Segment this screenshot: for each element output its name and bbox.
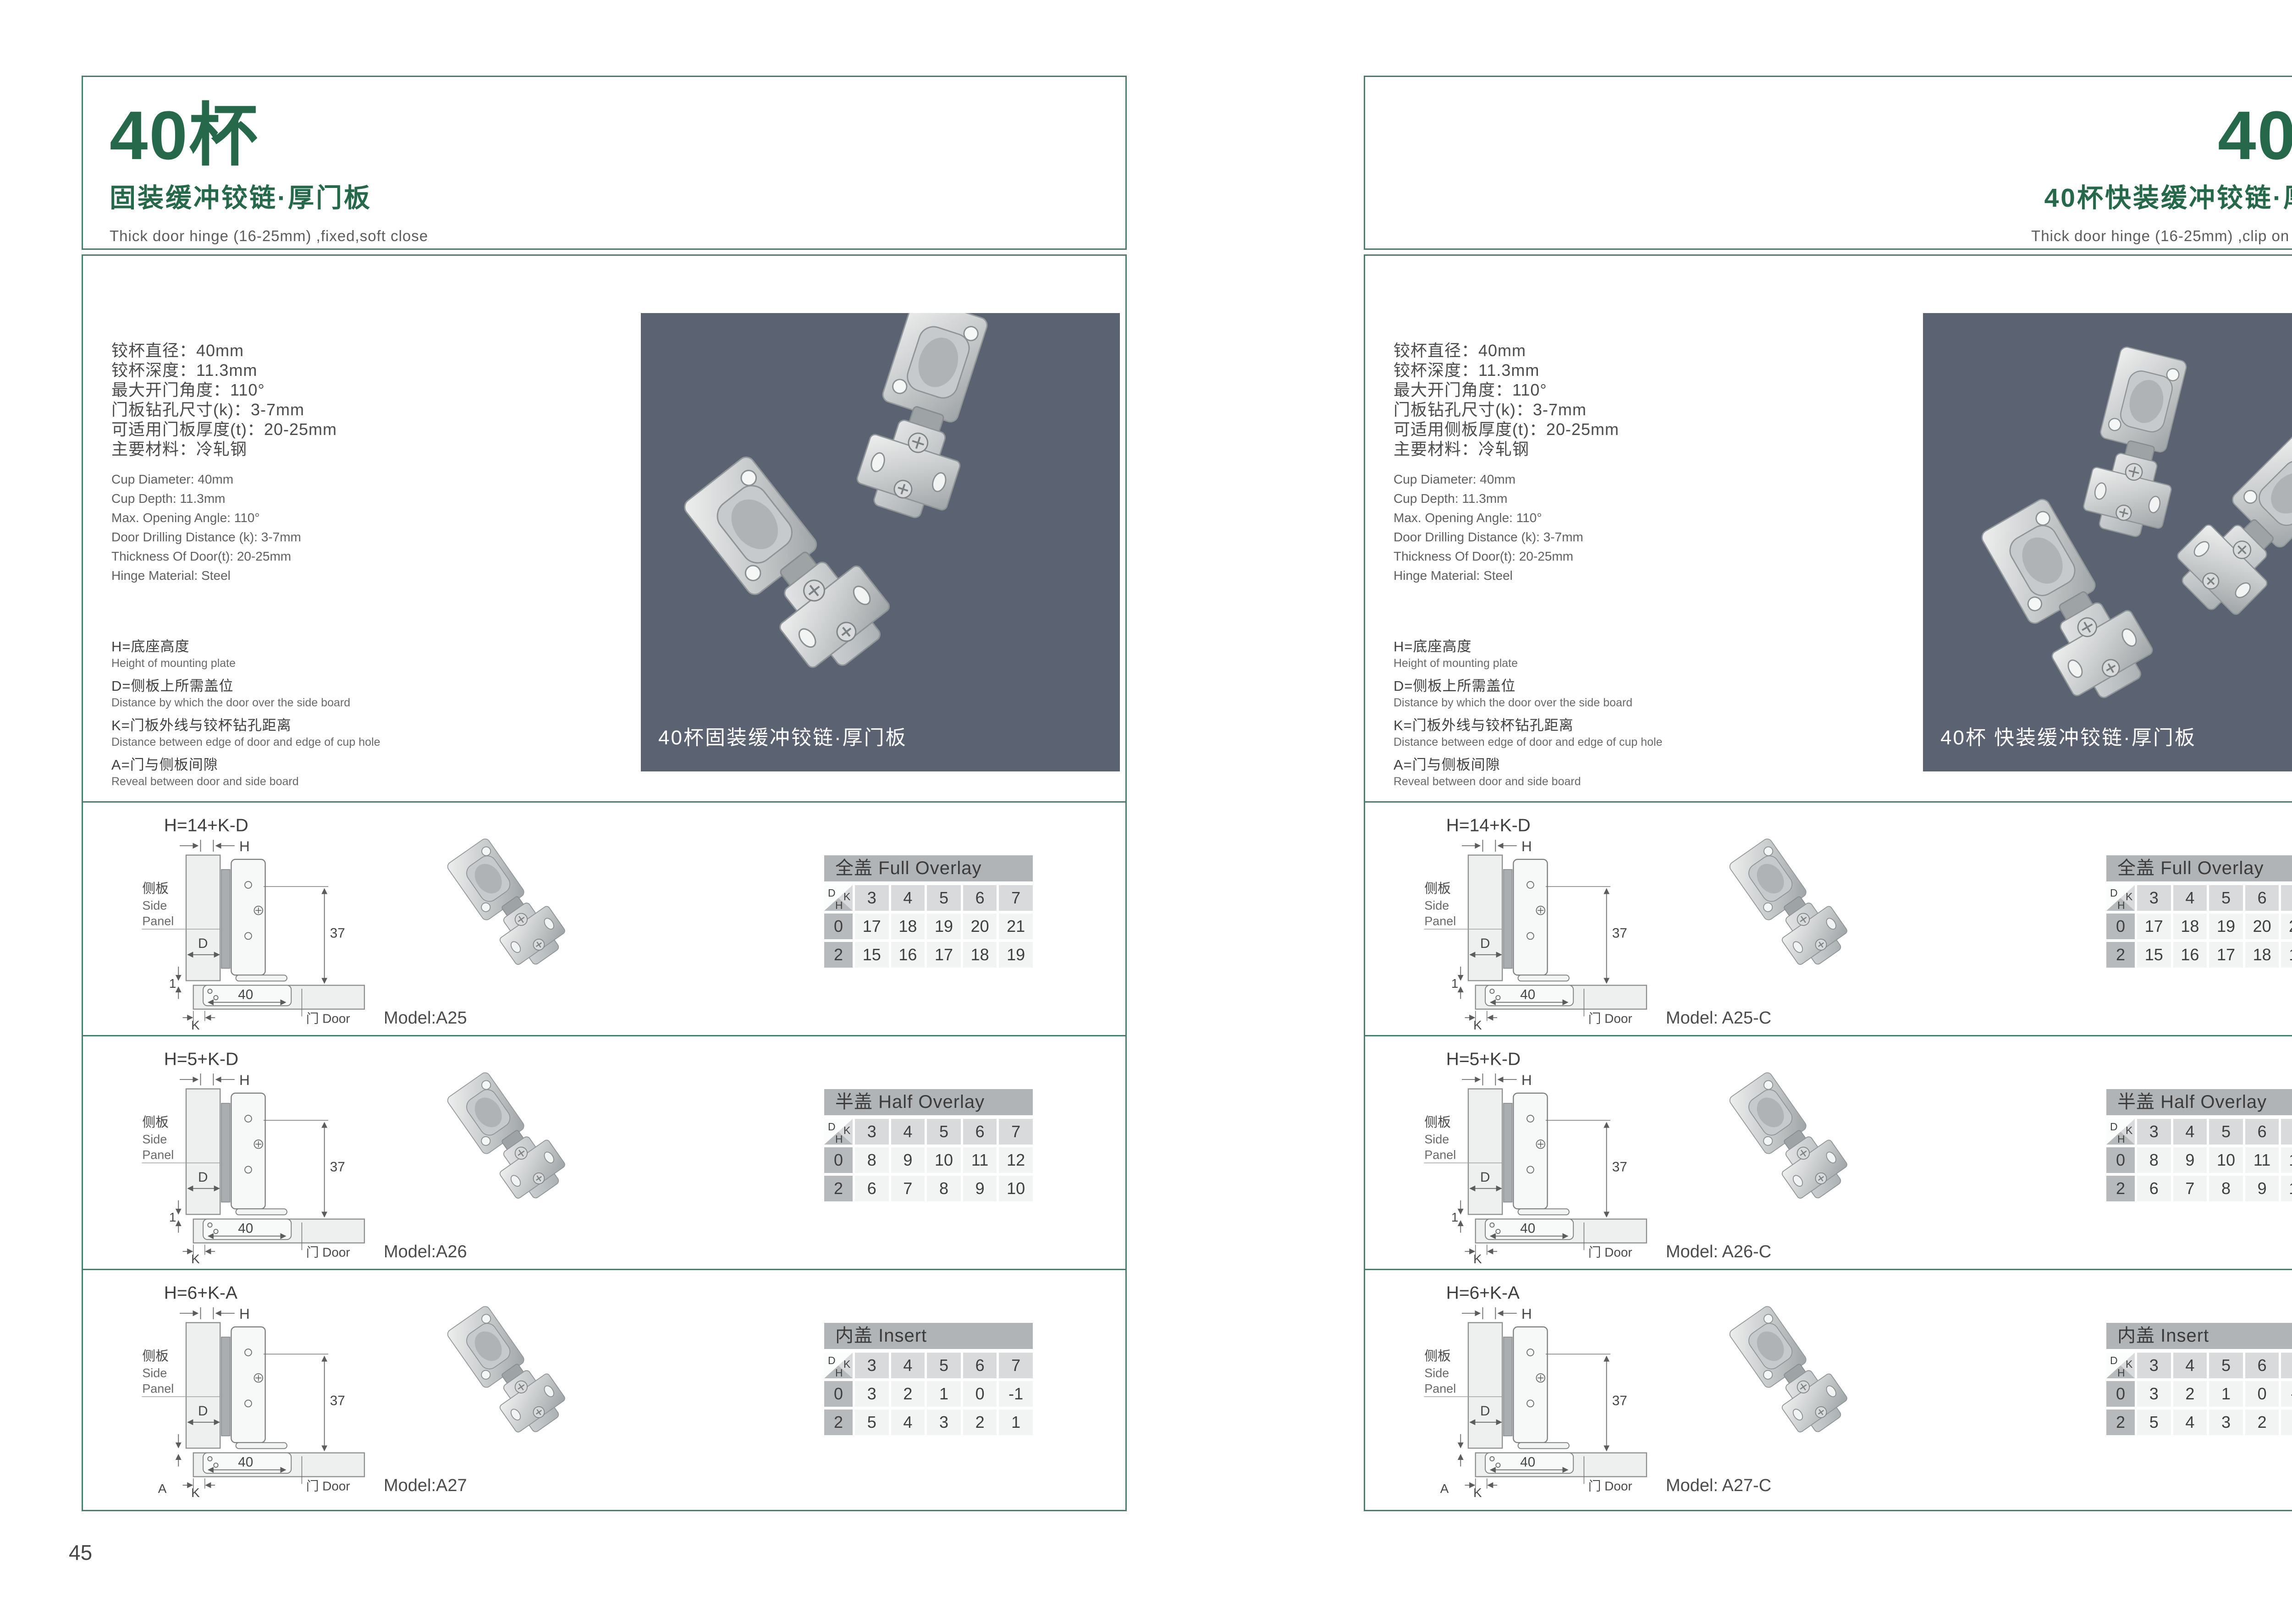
side-panel-en: Side <box>1424 898 1449 912</box>
table-col-header: 7 <box>2281 885 2292 911</box>
svg-text:K: K <box>843 1124 851 1136</box>
table-cell: 8 <box>855 1147 889 1173</box>
page46-header: 40杯 40杯快装缓冲铰链·厚门板 Thick door hinge (16-2… <box>1364 76 2292 250</box>
dim-h-label: H <box>1521 1072 1532 1088</box>
dim-gap-label: 1 <box>1451 976 1458 991</box>
table-cell: 3 <box>927 1409 961 1435</box>
dim-37-label: 37 <box>330 1160 345 1175</box>
side-panel-en: Side <box>142 1132 167 1146</box>
table-cell: 4 <box>891 1409 925 1435</box>
dim-40-label: 40 <box>1520 1454 1535 1470</box>
page-45: 40杯 固装缓冲铰链·厚门板 Thick door hinge (16-25mm… <box>82 76 1127 1511</box>
dim-d-label: D <box>1480 1170 1490 1185</box>
table-cell: 19 <box>2209 914 2243 939</box>
spec-line: Max. Opening Angle: 110° <box>1394 508 1907 528</box>
dim-37-label: 37 <box>1612 926 1627 941</box>
spec-block: 铰杯直径：40mm铰杯深度：11.3mm最大开门角度：110°门板钻孔尺寸(k)… <box>1394 341 1907 585</box>
page-subtitle-en: Thick door hinge (16-25mm) ,fixed,soft c… <box>110 227 1085 245</box>
specs-en: Cup Diameter: 40mmCup Depth: 11.3mmMax. … <box>111 470 625 585</box>
table-cell: 9 <box>2245 1176 2279 1201</box>
svg-text:K: K <box>843 1358 851 1370</box>
side-panel-en: Side <box>142 1366 167 1380</box>
table-grid: D K H 345670171819202121516171819 <box>2106 885 2292 968</box>
half-overlay-table: 半盖 Half Overlay D K H 345670891011122678… <box>824 1089 1033 1201</box>
dim-k-label: K <box>191 1486 200 1498</box>
page-46: 40杯 40杯快装缓冲铰链·厚门板 Thick door hinge (16-2… <box>1364 76 2292 1511</box>
spec-line: Cup Diameter: 40mm <box>111 470 625 489</box>
spec-line: 主要材料：冷轧钢 <box>1394 439 1907 459</box>
legend-en: Distance by which the door over the side… <box>111 695 639 710</box>
dim-k-label: K <box>1473 1486 1482 1498</box>
table-col-header: 4 <box>891 1119 925 1145</box>
dim-k-label: K <box>191 1252 200 1264</box>
dim-h-label: H <box>239 838 250 854</box>
side-panel-en: Panel <box>142 1148 174 1162</box>
table-cell: 1 <box>999 1409 1033 1435</box>
specs-en: Cup Diameter: 40mmCup Depth: 11.3mmMax. … <box>1394 470 1907 585</box>
side-panel-en: Panel <box>1424 914 1456 928</box>
side-panel-cn: 侧板 <box>1424 1349 1451 1364</box>
table-col-header: 3 <box>2137 1119 2171 1145</box>
table-cell: 3 <box>855 1381 889 1407</box>
dim-a-label: A <box>158 1481 167 1496</box>
half-overlay-table: 半盖 Half Overlay D K H 345670891011122678… <box>2106 1089 2292 1201</box>
page-subtitle-en: Thick door hinge (16-25mm) ,clip on ,sof… <box>1392 227 2292 245</box>
spec-line: 铰杯深度：11.3mm <box>1394 360 1907 380</box>
table-grid: D K H 345670891011122678910 <box>2106 1119 2292 1201</box>
table-title: 内盖 Insert <box>824 1323 1033 1349</box>
svg-text:H: H <box>2117 1367 2125 1378</box>
product-row-half-overlay: H=5+K-D H 侧板 Side Panel D 37 1 40 门 Door… <box>83 1035 1125 1269</box>
table-corner-cell: D K H <box>2106 1119 2135 1145</box>
door-label: 门 Door <box>306 1479 350 1493</box>
table-cell: 9 <box>963 1176 997 1201</box>
table-cell: 2 <box>891 1381 925 1407</box>
legend-en: Distance between edge of door and edge o… <box>111 735 639 750</box>
table-row-header: 2 <box>2106 942 2135 968</box>
table-cell: 12 <box>2281 1147 2292 1173</box>
table-col-header: 6 <box>963 1119 997 1145</box>
spec-line: Cup Depth: 11.3mm <box>111 489 625 508</box>
page-subtitle: 40杯快装缓冲铰链·厚门板 <box>1392 177 2292 215</box>
table-col-header: 5 <box>927 885 961 911</box>
dim-37-label: 37 <box>1612 1393 1627 1409</box>
spec-line: 最大开门角度：110° <box>1394 380 1907 400</box>
table-cell: -1 <box>999 1381 1033 1407</box>
product-photo: 40杯固装缓冲铰链·厚门板 <box>641 313 1120 771</box>
technical-drawing-svg: H=14+K-D H 侧板 Side Panel D 37 1 40 门 Doo… <box>1409 805 1670 1030</box>
table-col-header: 3 <box>2137 1353 2171 1378</box>
spec-line: 可适用侧板厚度(t)：20-25mm <box>1394 419 1907 439</box>
technical-drawing: H=5+K-D H 侧板 Side Panel D 37 1 40 门 Door… <box>1409 1039 1670 1264</box>
table-grid: D K H 345670171819202121516171819 <box>824 885 1033 968</box>
table-col-header: 4 <box>2173 1119 2207 1145</box>
table-title: 全盖 Full Overlay <box>2106 855 2292 881</box>
table-col-header: 6 <box>2245 1353 2279 1378</box>
legend-cn: A=门与侧板间隙 <box>1394 756 1921 774</box>
table-cell: 17 <box>855 914 889 939</box>
table-cell: 8 <box>2137 1147 2171 1173</box>
page-title: 40杯 <box>1392 101 2292 170</box>
table-row-header: 0 <box>2106 1147 2135 1173</box>
dimension-legend: H=底座高度Height of mounting plateD=侧板上所需盖位D… <box>1394 638 1921 795</box>
product-row-insert: H=6+K-A H 侧板 Side Panel D 37 40 门 Door K… <box>83 1269 1125 1503</box>
svg-text:K: K <box>2126 891 2133 903</box>
dim-a-label: A <box>1440 1481 1449 1496</box>
spec-line: Door Drilling Distance (k): 3-7mm <box>111 528 625 547</box>
product-photo-art <box>1923 313 2292 771</box>
technical-drawing: H=5+K-D H 侧板 Side Panel D 37 1 40 门 Door… <box>127 1039 388 1264</box>
door-label: 门 Door <box>306 1245 350 1259</box>
side-panel-cn: 侧板 <box>142 1115 169 1130</box>
photo-caption: 40杯固装缓冲铰链·厚门板 <box>658 721 907 750</box>
legend-en: Distance between edge of door and edge o… <box>1394 735 1921 750</box>
table-cell: 19 <box>927 914 961 939</box>
svg-text:H: H <box>2117 899 2125 911</box>
table-cell: 7 <box>2173 1176 2207 1201</box>
table-col-header: 7 <box>999 1353 1033 1378</box>
spec-line: 铰杯直径：40mm <box>1394 341 1907 360</box>
side-panel-en: Panel <box>1424 1148 1456 1162</box>
spec-line: 门板钻孔尺寸(k)：3-7mm <box>111 400 625 419</box>
table-cell: 4 <box>2173 1409 2207 1435</box>
legend-cn: K=门板外线与铰杯钻孔距离 <box>111 716 639 735</box>
table-cell: 10 <box>927 1147 961 1173</box>
side-panel-en: Panel <box>1424 1382 1456 1396</box>
table-corner-cell: D K H <box>824 885 853 911</box>
product-row-insert: H=6+K-A H 侧板 Side Panel D 37 40 门 Door K… <box>1365 1269 2292 1503</box>
legend-item: K=门板外线与铰杯钻孔距离Distance between edge of do… <box>1394 716 1921 750</box>
table-cell: 0 <box>963 1381 997 1407</box>
table-cell: 2 <box>963 1409 997 1435</box>
table-cell: 15 <box>855 942 889 968</box>
side-panel-cn: 侧板 <box>142 881 169 896</box>
spec-line: 铰杯直径：40mm <box>111 341 625 360</box>
table-col-header: 4 <box>2173 1353 2207 1378</box>
table-cell: 21 <box>2281 914 2292 939</box>
hinge-photo <box>1686 1046 1901 1230</box>
table-cell: 18 <box>2245 942 2279 968</box>
table-col-header: 6 <box>2245 1119 2279 1145</box>
table-cell: 20 <box>963 914 997 939</box>
spec-line: Hinge Material: Steel <box>111 566 625 585</box>
table-col-header: 7 <box>2281 1353 2292 1378</box>
legend-item: A=门与侧板间隙Reveal between door and side boa… <box>111 756 639 789</box>
side-panel-cn: 侧板 <box>1424 881 1451 896</box>
technical-drawing-svg: H=5+K-D H 侧板 Side Panel D 37 1 40 门 Door… <box>1409 1039 1670 1264</box>
hinge-photo <box>1686 813 1901 996</box>
table-cell: 16 <box>2173 942 2207 968</box>
table-col-header: 3 <box>855 1119 889 1145</box>
technical-drawing-svg: H=5+K-D H 侧板 Side Panel D 37 1 40 门 Door… <box>127 1039 388 1264</box>
spec-block: 铰杯直径：40mm铰杯深度：11.3mm最大开门角度：110°门板钻孔尺寸(k)… <box>111 341 625 585</box>
table-cell: 12 <box>999 1147 1033 1173</box>
dim-37-label: 37 <box>330 1393 345 1409</box>
door-label: 门 Door <box>306 1011 350 1025</box>
spec-line: 最大开门角度：110° <box>111 380 625 400</box>
hinge-illustration <box>404 813 619 996</box>
dim-k-label: K <box>191 1018 200 1030</box>
page45-content: 铰杯直径：40mm铰杯深度：11.3mm最大开门角度：110°门板钻孔尺寸(k)… <box>82 254 1127 1511</box>
table-cell: 18 <box>963 942 997 968</box>
table-cell: 11 <box>963 1147 997 1173</box>
table-col-header: 5 <box>2209 1119 2243 1145</box>
table-cell: 8 <box>2209 1176 2243 1201</box>
table-corner-cell: D K H <box>2106 1353 2135 1378</box>
product-row-full-overlay: H=14+K-D H 侧板 Side Panel D 37 1 40 门 Doo… <box>1365 801 2292 1035</box>
svg-text:D: D <box>828 1121 836 1133</box>
table-cell: -1 <box>2281 1381 2292 1407</box>
product-photo: 40杯 快装缓冲铰链·厚门板 <box>1923 313 2292 771</box>
side-panel-en: Side <box>1424 1366 1449 1380</box>
table-cell: 6 <box>2137 1176 2171 1201</box>
technical-drawing: H=14+K-D H 侧板 Side Panel D 37 1 40 门 Doo… <box>127 805 388 1030</box>
legend-item: H=底座高度Height of mounting plate <box>111 638 639 671</box>
dim-gap-label: 1 <box>169 976 176 991</box>
table-cell: 18 <box>891 914 925 939</box>
hinge-illustration <box>1686 1280 1901 1464</box>
hinge-photo <box>404 1046 619 1230</box>
table-corner-cell: D K H <box>2106 885 2135 911</box>
svg-text:H: H <box>835 1367 843 1378</box>
table-corner-cell: D K H <box>824 1353 853 1378</box>
legend-item: A=门与侧板间隙Reveal between door and side boa… <box>1394 756 1921 789</box>
table-row-header: 2 <box>824 1409 853 1435</box>
legend-cn: D=侧板上所需盖位 <box>111 677 639 695</box>
table-cell: 19 <box>2281 942 2292 968</box>
technical-drawing: H=6+K-A H 侧板 Side Panel D 37 40 门 Door K… <box>1409 1272 1670 1498</box>
dim-h-label: H <box>1521 838 1532 854</box>
model-label: Model: A26-C <box>1666 1242 1771 1262</box>
model-label: Model:A26 <box>384 1242 467 1262</box>
table-cell: 17 <box>2137 914 2171 939</box>
full-overlay-table: 全盖 Full Overlay D K H 345670171819202121… <box>2106 855 2292 968</box>
side-panel-en: Side <box>1424 1132 1449 1146</box>
svg-text:D: D <box>2110 1121 2118 1133</box>
dim-37-label: 37 <box>330 926 345 941</box>
technical-drawing: H=14+K-D H 侧板 Side Panel D 37 1 40 门 Doo… <box>1409 805 1670 1030</box>
dim-40-label: 40 <box>1520 1221 1535 1236</box>
spec-line: 主要材料：冷轧钢 <box>111 439 625 459</box>
hinge-illustration <box>404 1046 619 1230</box>
table-cell: 16 <box>891 942 925 968</box>
table-col-header: 6 <box>963 1353 997 1378</box>
table-corner-cell: D K H <box>824 1119 853 1145</box>
table-cell: 9 <box>891 1147 925 1173</box>
drawing-formula: H=5+K-D <box>1446 1050 1521 1069</box>
side-panel-en: Side <box>142 898 167 912</box>
spec-line: 铰杯深度：11.3mm <box>111 360 625 380</box>
table-cell: 9 <box>2173 1147 2207 1173</box>
dim-d-label: D <box>1480 1404 1490 1419</box>
catalog-spread: 40杯 固装缓冲铰链·厚门板 Thick door hinge (16-25mm… <box>0 0 2292 1624</box>
drawing-formula: H=6+K-A <box>1446 1283 1520 1303</box>
dim-gap-label: 1 <box>1451 1210 1458 1224</box>
spec-line: 可适用门板厚度(t)：20-25mm <box>111 419 625 439</box>
legend-cn: H=底座高度 <box>1394 638 1921 656</box>
table-row-header: 0 <box>824 1381 853 1407</box>
table-col-header: 4 <box>891 1353 925 1378</box>
table-cell: 7 <box>891 1176 925 1201</box>
table-title: 全盖 Full Overlay <box>824 855 1033 881</box>
spec-line: Hinge Material: Steel <box>1394 566 1907 585</box>
dim-40-label: 40 <box>238 1454 253 1470</box>
table-col-header: 4 <box>891 885 925 911</box>
hinge-illustration <box>1686 813 1901 996</box>
table-row-header: 0 <box>2106 914 2135 939</box>
table-cell: 19 <box>999 942 1033 968</box>
dim-d-label: D <box>198 936 208 951</box>
photo-caption: 40杯 快装缓冲铰链·厚门板 <box>1940 721 2196 750</box>
side-panel-en: Panel <box>142 914 174 928</box>
table-cell: 21 <box>999 914 1033 939</box>
table-row-header: 2 <box>2106 1409 2135 1435</box>
table-col-header: 6 <box>963 885 997 911</box>
dim-h-label: H <box>239 1072 250 1088</box>
side-panel-cn: 侧板 <box>142 1349 169 1364</box>
product-row-half-overlay: H=5+K-D H 侧板 Side Panel D 37 1 40 门 Door… <box>1365 1035 2292 1269</box>
table-col-header: 3 <box>855 885 889 911</box>
drawing-formula: H=6+K-A <box>164 1283 237 1303</box>
table-row-header: 0 <box>2106 1381 2135 1407</box>
dim-37-label: 37 <box>1612 1160 1627 1175</box>
table-col-header: 3 <box>855 1353 889 1378</box>
dim-d-label: D <box>198 1404 208 1419</box>
table-cell: 11 <box>2245 1147 2279 1173</box>
table-row-header: 2 <box>824 942 853 968</box>
svg-text:K: K <box>2126 1124 2133 1136</box>
drawing-formula: H=14+K-D <box>1446 816 1531 836</box>
table-grid: D K H 345670891011122678910 <box>824 1119 1033 1201</box>
legend-item: D=侧板上所需盖位Distance by which the door over… <box>111 677 639 710</box>
table-cell: 8 <box>927 1176 961 1201</box>
spec-line: Cup Diameter: 40mm <box>1394 470 1907 489</box>
door-label: 门 Door <box>1588 1011 1632 1025</box>
table-cell: 1 <box>2281 1409 2292 1435</box>
dim-k-label: K <box>1473 1018 1482 1030</box>
legend-cn: K=门板外线与铰杯钻孔距离 <box>1394 716 1921 735</box>
technical-drawing: H=6+K-A H 侧板 Side Panel D 37 40 门 Door K… <box>127 1272 388 1498</box>
legend-en: Reveal between door and side board <box>111 774 639 789</box>
hinge-photo <box>1686 1280 1901 1464</box>
dim-h-label: H <box>1521 1305 1532 1322</box>
hinge-photo <box>404 813 619 996</box>
side-panel-cn: 侧板 <box>1424 1115 1451 1130</box>
door-label: 门 Door <box>1588 1245 1632 1259</box>
insert-table: 内盖 Insert D K H 3456703210-1254321 <box>2106 1323 2292 1435</box>
legend-en: Height of mounting plate <box>111 656 639 671</box>
technical-drawing-svg: H=14+K-D H 侧板 Side Panel D 37 1 40 门 Doo… <box>127 805 388 1030</box>
dimension-legend: H=底座高度Height of mounting plateD=侧板上所需盖位D… <box>111 638 639 795</box>
dim-40-label: 40 <box>238 1221 253 1236</box>
table-title: 半盖 Half Overlay <box>2106 1089 2292 1115</box>
dim-d-label: D <box>1480 936 1490 951</box>
page-number-left: 45 <box>69 1540 92 1565</box>
legend-item: D=侧板上所需盖位Distance by which the door over… <box>1394 677 1921 710</box>
dim-gap-label: 1 <box>169 1210 176 1224</box>
model-label: Model:A25 <box>384 1008 467 1028</box>
table-cell: 6 <box>855 1176 889 1201</box>
spec-line: Max. Opening Angle: 110° <box>111 508 625 528</box>
table-title: 半盖 Half Overlay <box>824 1089 1033 1115</box>
spec-line: Door Drilling Distance (k): 3-7mm <box>1394 528 1907 547</box>
svg-text:K: K <box>843 891 851 903</box>
svg-text:D: D <box>828 1354 836 1366</box>
specs-cn: 铰杯直径：40mm铰杯深度：11.3mm最大开门角度：110°门板钻孔尺寸(k)… <box>111 341 625 459</box>
legend-en: Reveal between door and side board <box>1394 774 1921 789</box>
table-cell: 17 <box>2209 942 2243 968</box>
table-col-header: 4 <box>2173 885 2207 911</box>
dim-k-label: K <box>1473 1252 1482 1264</box>
dim-40-label: 40 <box>1520 987 1535 1002</box>
dim-40-label: 40 <box>238 987 253 1002</box>
hinge-illustration <box>1686 1046 1901 1230</box>
insert-table: 内盖 Insert D K H 3456703210-1254321 <box>824 1323 1033 1435</box>
model-label: Model:A27 <box>384 1476 467 1496</box>
table-cell: 3 <box>2209 1409 2243 1435</box>
spec-line: Thickness Of Door(t): 20-25mm <box>1394 547 1907 566</box>
table-row-header: 2 <box>824 1176 853 1201</box>
svg-text:H: H <box>2117 1133 2125 1145</box>
legend-item: K=门板外线与铰杯钻孔距离Distance between edge of do… <box>111 716 639 750</box>
table-cell: 10 <box>2209 1147 2243 1173</box>
spec-line: 门板钻孔尺寸(k)：3-7mm <box>1394 400 1907 419</box>
table-cell: 1 <box>927 1381 961 1407</box>
table-col-header: 5 <box>927 1119 961 1145</box>
technical-drawing-svg: H=6+K-A H 侧板 Side Panel D 37 40 门 Door K… <box>127 1272 388 1498</box>
table-col-header: 5 <box>2209 1353 2243 1378</box>
table-col-header: 5 <box>2209 885 2243 911</box>
table-col-header: 5 <box>927 1353 961 1378</box>
drawing-formula: H=5+K-D <box>164 1050 238 1069</box>
dim-h-label: H <box>239 1305 250 1322</box>
hinge-photo <box>404 1280 619 1464</box>
svg-text:H: H <box>835 899 843 911</box>
legend-item: H=底座高度Height of mounting plate <box>1394 638 1921 671</box>
table-cell: 18 <box>2173 914 2207 939</box>
page-title: 40杯 <box>110 101 1085 170</box>
full-overlay-table: 全盖 Full Overlay D K H 345670171819202121… <box>824 855 1033 968</box>
hinge-illustration <box>404 1280 619 1464</box>
table-cell: 5 <box>2137 1409 2171 1435</box>
table-cell: 17 <box>927 942 961 968</box>
table-cell: 3 <box>2137 1381 2171 1407</box>
spec-line: Thickness Of Door(t): 20-25mm <box>111 547 625 566</box>
specs-cn: 铰杯直径：40mm铰杯深度：11.3mm最大开门角度：110°门板钻孔尺寸(k)… <box>1394 341 1907 459</box>
table-title: 内盖 Insert <box>2106 1323 2292 1349</box>
svg-text:H: H <box>835 1133 843 1145</box>
svg-text:D: D <box>2110 1354 2118 1366</box>
page45-header: 40杯 固装缓冲铰链·厚门板 Thick door hinge (16-25mm… <box>82 76 1127 250</box>
table-row-header: 0 <box>824 914 853 939</box>
table-cell: 2 <box>2173 1381 2207 1407</box>
technical-drawing-svg: H=6+K-A H 侧板 Side Panel D 37 40 门 Door K… <box>1409 1272 1670 1498</box>
model-label: Model: A25-C <box>1666 1008 1771 1028</box>
table-col-header: 7 <box>2281 1119 2292 1145</box>
svg-text:K: K <box>2126 1358 2133 1370</box>
legend-cn: D=侧板上所需盖位 <box>1394 677 1921 695</box>
page-subtitle: 固装缓冲铰链·厚门板 <box>110 177 1085 215</box>
svg-text:D: D <box>2110 887 2118 899</box>
legend-en: Height of mounting plate <box>1394 656 1921 671</box>
dim-d-label: D <box>198 1170 208 1185</box>
table-grid: D K H 3456703210-1254321 <box>2106 1353 2292 1435</box>
table-col-header: 7 <box>999 1119 1033 1145</box>
table-col-header: 6 <box>2245 885 2279 911</box>
product-row-full-overlay: H=14+K-D H 侧板 Side Panel D 37 1 40 门 Doo… <box>83 801 1125 1035</box>
page46-content: 铰杯直径：40mm铰杯深度：11.3mm最大开门角度：110°门板钻孔尺寸(k)… <box>1364 254 2292 1511</box>
table-row-header: 2 <box>2106 1176 2135 1201</box>
